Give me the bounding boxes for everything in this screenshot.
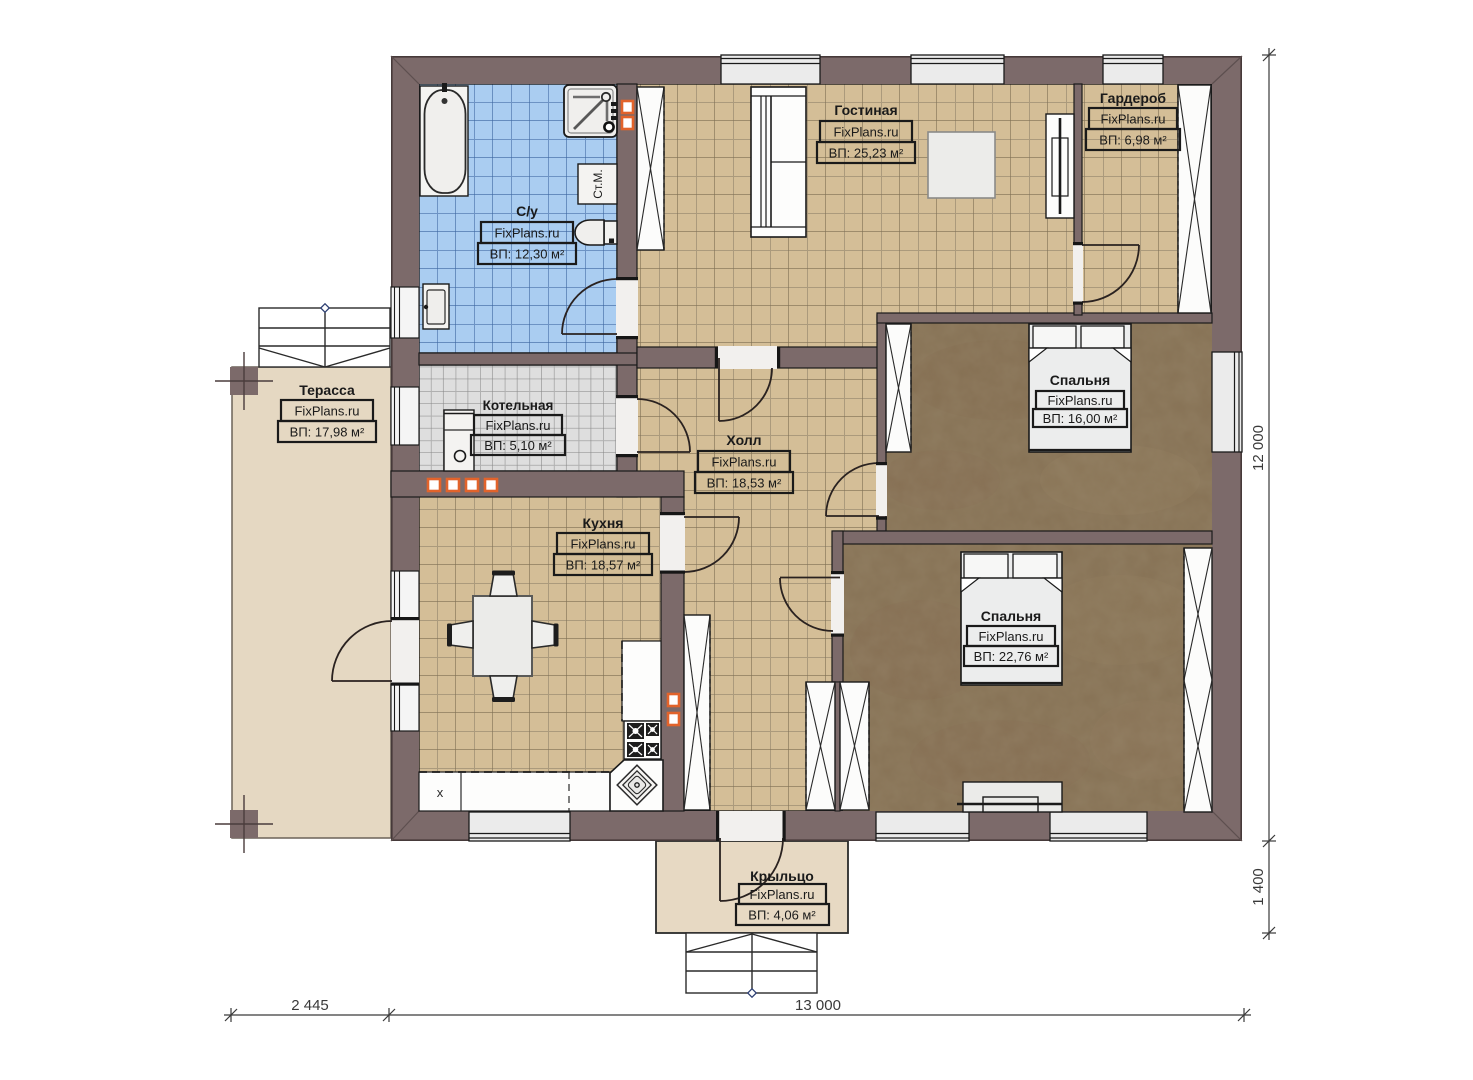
svg-text:x: x (437, 785, 444, 800)
svg-text:FixPlans.ru: FixPlans.ru (570, 537, 635, 552)
svg-text:2 445: 2 445 (291, 997, 329, 1014)
svg-text:FixPlans.ru: FixPlans.ru (978, 629, 1043, 644)
svg-text:ВП: 25,23 м²: ВП: 25,23 м² (829, 146, 904, 161)
svg-text:ВП: 4,06 м²: ВП: 4,06 м² (748, 908, 816, 923)
svg-text:Котельная: Котельная (483, 398, 554, 413)
svg-text:ВП: 6,98 м²: ВП: 6,98 м² (1099, 133, 1167, 148)
svg-text:FixPlans.ru: FixPlans.ru (711, 455, 776, 470)
svg-text:Крыльцо: Крыльцо (750, 868, 814, 884)
svg-text:FixPlans.ru: FixPlans.ru (1047, 393, 1112, 408)
svg-text:ВП: 17,98 м²: ВП: 17,98 м² (290, 425, 365, 440)
svg-text:ВП: 18,53 м²: ВП: 18,53 м² (707, 476, 782, 491)
svg-text:FixPlans.ru: FixPlans.ru (294, 404, 359, 419)
svg-text:ВП: 5,10 м²: ВП: 5,10 м² (484, 438, 552, 453)
svg-text:ВП: 12,30 м²: ВП: 12,30 м² (490, 247, 565, 262)
svg-text:Спальня: Спальня (1050, 372, 1110, 388)
svg-text:ВП: 18,57 м²: ВП: 18,57 м² (566, 558, 641, 573)
svg-text:ВП: 16,00 м²: ВП: 16,00 м² (1043, 411, 1118, 426)
svg-text:Гостиная: Гостиная (834, 102, 897, 118)
svg-text:Терасса: Терасса (299, 382, 355, 398)
svg-text:FixPlans.ru: FixPlans.ru (1100, 112, 1165, 127)
svg-text:FixPlans.ru: FixPlans.ru (833, 125, 898, 140)
svg-text:FixPlans.ru: FixPlans.ru (749, 887, 814, 902)
svg-text:FixPlans.ru: FixPlans.ru (485, 418, 550, 433)
svg-text:С/у: С/у (516, 203, 538, 219)
svg-text:Ст.М.: Ст.М. (591, 169, 605, 199)
svg-text:1 400: 1 400 (1250, 868, 1267, 906)
svg-text:Гардероб: Гардероб (1100, 90, 1167, 106)
svg-text:Холл: Холл (726, 432, 761, 448)
svg-text:ВП: 22,76 м²: ВП: 22,76 м² (974, 649, 1049, 664)
svg-text:FixPlans.ru: FixPlans.ru (494, 226, 559, 241)
svg-text:12 000: 12 000 (1250, 425, 1267, 471)
svg-text:Спальня: Спальня (981, 608, 1041, 624)
svg-text:Кухня: Кухня (583, 515, 624, 531)
svg-text:13 000: 13 000 (795, 997, 841, 1014)
